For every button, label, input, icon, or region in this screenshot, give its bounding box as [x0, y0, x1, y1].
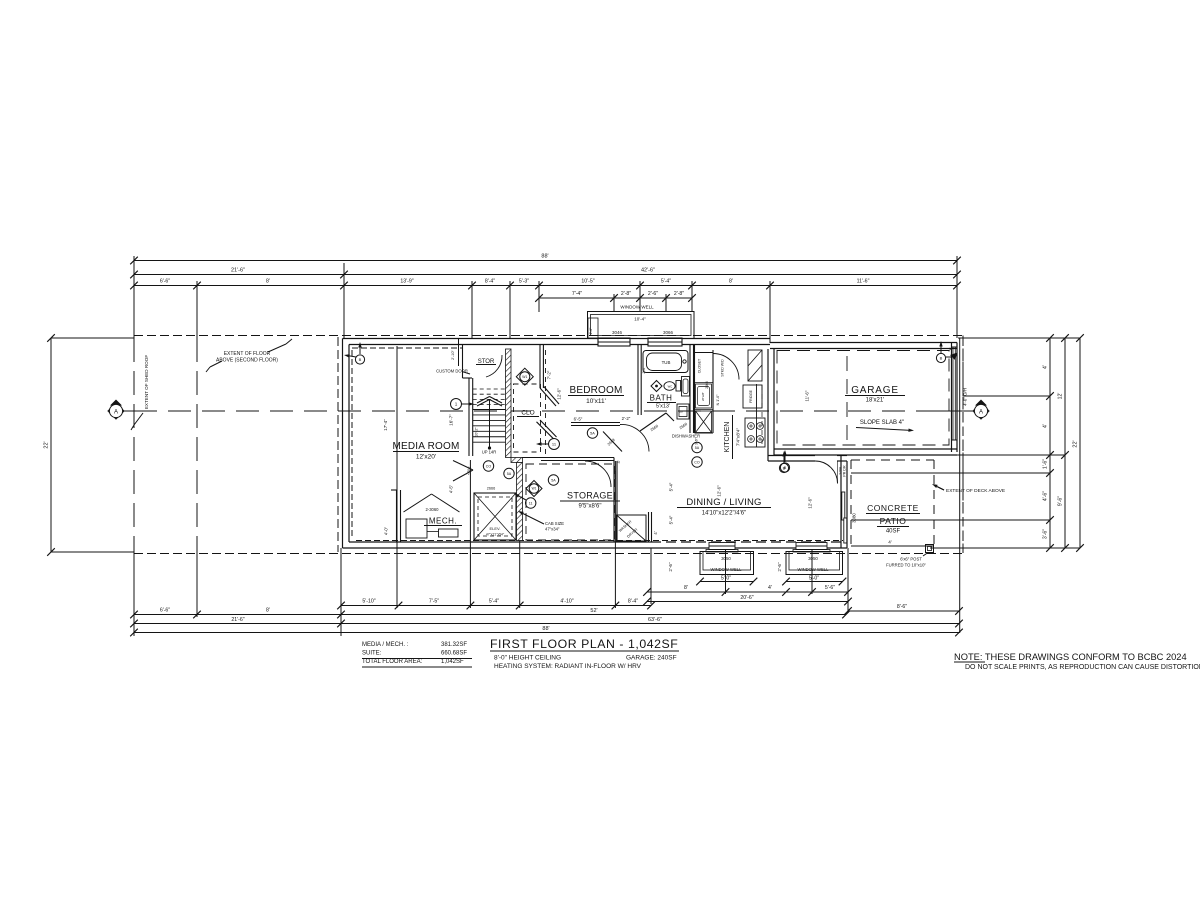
svg-text:PR DR: PR DR — [843, 465, 847, 477]
svg-text:ABOVE (SECOND FLOOR): ABOVE (SECOND FLOOR) — [216, 358, 278, 364]
svg-text:9'5"x8'6": 9'5"x8'6" — [579, 504, 602, 510]
svg-text:660.68SF: 660.68SF — [441, 651, 467, 657]
svg-text:DINING / LIVING: DINING / LIVING — [686, 497, 761, 508]
svg-text:12'-6": 12'-6" — [557, 388, 562, 400]
svg-text:CONCRETE: CONCRETE — [867, 503, 919, 513]
svg-text:5A: 5A — [551, 478, 556, 482]
svg-text:WC: WC — [668, 385, 673, 389]
svg-text:BATH: BATH — [650, 394, 673, 403]
svg-text:N 1'-0": N 1'-0" — [716, 394, 720, 405]
svg-text:5'-4": 5'-4" — [669, 482, 674, 491]
svg-text:12'-6": 12'-6" — [717, 485, 722, 497]
svg-text:22': 22' — [44, 441, 50, 448]
svg-text:4': 4' — [1043, 365, 1049, 369]
svg-text:47"x34": 47"x34" — [545, 527, 560, 532]
svg-text:12'-6": 12'-6" — [808, 497, 813, 509]
svg-text:HEATING SYSTEM: RADIANT IN-FLO: HEATING SYSTEM: RADIANT IN-FLOOR W/ HRV — [494, 663, 642, 670]
svg-text:5'-4": 5'-4" — [661, 279, 671, 285]
svg-text:A: A — [114, 409, 118, 415]
svg-text:52': 52' — [590, 608, 597, 614]
svg-text:5'-0": 5'-0" — [809, 576, 819, 582]
svg-text:8': 8' — [266, 608, 270, 614]
svg-text:4'-10": 4'-10" — [560, 599, 573, 605]
svg-text:5'-6": 5'-6" — [825, 585, 835, 591]
svg-text:4': 4' — [616, 460, 621, 463]
svg-text:FIRST FLOOR PLAN - 1,042SF: FIRST FLOOR PLAN - 1,042SF — [490, 637, 678, 651]
svg-text:FRIDGE: FRIDGE — [749, 389, 753, 403]
svg-text:STORAGE: STORAGE — [567, 491, 613, 501]
svg-text:381.32SF: 381.32SF — [441, 642, 467, 648]
svg-text:2'-2": 2'-2" — [622, 416, 631, 421]
svg-text:12': 12' — [1058, 393, 1064, 400]
svg-text:2'-6": 2'-6" — [589, 327, 593, 335]
svg-text:1'-6": 1'-6" — [1043, 459, 1049, 469]
svg-text:PATIO: PATIO — [880, 516, 907, 526]
svg-text:2'-8": 2'-8" — [621, 291, 631, 297]
svg-text:2'-6": 2'-6" — [668, 562, 673, 572]
svg-text:NOTE: THESE DRAWINGS CONFORM: NOTE: THESE DRAWINGS CONFORM TO BCBC 202… — [954, 652, 1187, 662]
svg-text:BEDROOM: BEDROOM — [569, 385, 622, 396]
svg-text:5'-4": 5'-4" — [489, 599, 499, 605]
svg-text:5'-3": 5'-3" — [519, 279, 529, 285]
svg-text:TOTAL FLOOR AREA:: TOTAL FLOOR AREA: — [362, 659, 423, 665]
svg-text:5A: 5A — [590, 431, 595, 435]
svg-text:CLO: CLO — [521, 410, 534, 417]
svg-text:EXTENT OF DECK ABOVE: EXTENT OF DECK ABOVE — [946, 488, 1005, 494]
svg-text:W1: W1 — [532, 487, 537, 491]
svg-text:SLOPE SLAB 4": SLOPE SLAB 4" — [860, 420, 904, 426]
svg-text:88': 88' — [541, 254, 548, 260]
svg-text:3066: 3066 — [663, 330, 674, 335]
svg-text:17'-4": 17'-4" — [383, 419, 388, 431]
svg-text:4'-6": 4'-6" — [1043, 491, 1049, 501]
svg-text:20: 20 — [679, 410, 683, 414]
svg-text:8'-0" HEIGHT CEILING: 8'-0" HEIGHT CEILING — [494, 655, 561, 662]
svg-text:SUITE:: SUITE: — [362, 651, 382, 657]
svg-text:8': 8' — [684, 585, 688, 591]
svg-text:10'-5": 10'-5" — [581, 279, 594, 285]
svg-text:3'-6": 3'-6" — [1043, 529, 1049, 539]
svg-text:10'-2": 10'-2" — [475, 427, 479, 437]
svg-text:7'-5": 7'-5" — [429, 599, 439, 605]
svg-text:2666: 2666 — [487, 487, 495, 491]
svg-text:FURRED TO 10"x10": FURRED TO 10"x10" — [886, 563, 926, 568]
svg-text:8'-4": 8'-4" — [628, 599, 638, 605]
svg-text:7'-4": 7'-4" — [572, 291, 582, 297]
svg-text:CO: CO — [694, 460, 700, 464]
svg-text:47"x21"x54": 47"x21"x54" — [486, 533, 505, 537]
svg-text:20'-6": 20'-6" — [740, 595, 753, 601]
svg-text:2'-8": 2'-8" — [674, 291, 684, 297]
svg-text:9'-6": 9'-6" — [1058, 496, 1064, 506]
svg-text:W1: W1 — [522, 375, 527, 379]
svg-text:6'-6": 6'-6" — [160, 279, 170, 285]
svg-text:A: A — [979, 409, 983, 415]
svg-text:UP 14R: UP 14R — [482, 450, 497, 455]
svg-text:ELEV.: ELEV. — [490, 526, 501, 531]
svg-text:11: 11 — [529, 501, 533, 505]
svg-text:8': 8' — [266, 279, 270, 285]
svg-text:7'4"x8'4": 7'4"x8'4" — [736, 428, 742, 447]
svg-text:42'-6": 42'-6" — [641, 268, 655, 274]
svg-text:DO NOT SCALE PRINTS, AS REPROD: DO NOT SCALE PRINTS, AS REPRODUCTION CAN… — [965, 664, 1200, 671]
svg-text:MECH.: MECH. — [429, 517, 457, 526]
svg-text:5'-10": 5'-10" — [362, 599, 375, 605]
svg-text:8': 8' — [729, 279, 733, 285]
svg-text:8'-4": 8'-4" — [485, 279, 495, 285]
svg-text:3080: 3080 — [852, 513, 857, 523]
svg-text:TUB: TUB — [662, 360, 671, 365]
svg-text:5'x13': 5'x13' — [656, 404, 670, 410]
svg-text:B: B — [359, 357, 362, 362]
svg-text:4'-5": 4'-5" — [449, 484, 454, 493]
svg-text:16'-7": 16'-7" — [449, 414, 454, 426]
svg-text:13'-9": 13'-9" — [400, 279, 413, 285]
svg-text:5A: 5A — [507, 472, 512, 476]
svg-text:40SF: 40SF — [886, 529, 901, 535]
svg-text:18'x21': 18'x21' — [866, 398, 885, 404]
svg-text:WINDOW WELL: WINDOW WELL — [711, 567, 743, 572]
svg-text:22': 22' — [1073, 440, 1079, 447]
svg-text:3050: 3050 — [808, 556, 818, 561]
svg-text:2'-6": 2'-6" — [648, 291, 658, 297]
svg-text:MEDIA / MECH. :: MEDIA / MECH. : — [362, 642, 409, 648]
svg-text:3046: 3046 — [612, 330, 623, 335]
svg-text:WINDOW WELL: WINDOW WELL — [620, 305, 654, 310]
svg-text:4': 4' — [888, 540, 892, 545]
svg-text:2'-6": 2'-6" — [642, 366, 646, 374]
svg-text:2'-6": 2'-6" — [777, 562, 782, 572]
svg-text:10'-4": 10'-4" — [634, 317, 646, 322]
svg-text:3050: 3050 — [721, 556, 731, 561]
svg-text:12'x20': 12'x20' — [416, 454, 436, 461]
svg-text:4': 4' — [653, 531, 658, 534]
svg-text:10'x11': 10'x11' — [586, 398, 606, 405]
svg-text:WINDOW WELL: WINDOW WELL — [798, 567, 830, 572]
svg-text:2'-10": 2'-10" — [451, 350, 455, 360]
svg-text:21'-6": 21'-6" — [231, 268, 245, 274]
svg-text:1,042SF: 1,042SF — [441, 659, 464, 665]
svg-text:B: B — [940, 355, 943, 360]
svg-text:CAB SIZE: CAB SIZE — [545, 521, 564, 526]
svg-text:88': 88' — [542, 626, 549, 632]
svg-text:1: 1 — [455, 402, 458, 407]
svg-text:11'-6": 11'-6" — [805, 390, 810, 401]
svg-text:2-3060: 2-3060 — [425, 507, 439, 512]
svg-text:5'-4": 5'-4" — [669, 515, 674, 524]
svg-text:8'-6": 8'-6" — [897, 604, 907, 610]
svg-text:5A: 5A — [695, 446, 700, 450]
svg-text:B: B — [783, 465, 786, 470]
svg-text:6'-5": 6'-5" — [574, 417, 583, 422]
svg-text:4': 4' — [1043, 424, 1049, 428]
svg-text:KITCHEN: KITCHEN — [724, 422, 731, 453]
svg-text:MEDIA ROOM: MEDIA ROOM — [392, 441, 459, 452]
svg-text:GARAGE: 240SF: GARAGE: 240SF — [626, 655, 677, 662]
svg-text:6'x6" POST: 6'x6" POST — [900, 557, 922, 562]
svg-text:4'-0": 4'-0" — [384, 526, 389, 535]
svg-text:CUSTOM DOOR: CUSTOM DOOR — [436, 369, 468, 374]
svg-text:CLOSET: CLOSET — [698, 358, 702, 373]
svg-text:4': 4' — [768, 585, 772, 591]
svg-text:21'-6": 21'-6" — [231, 617, 244, 623]
svg-text:6'-6": 6'-6" — [160, 608, 170, 614]
svg-text:3'-6": 3'-6" — [695, 437, 699, 445]
svg-text:EXTENT OF SHED ROOF: EXTENT OF SHED ROOF — [144, 355, 149, 409]
svg-text:GARAGE: GARAGE — [851, 385, 899, 396]
svg-text:CO: CO — [486, 464, 492, 468]
svg-text:63'-6": 63'-6" — [648, 617, 662, 623]
svg-text:DISHWASHER: DISHWASHER — [672, 434, 700, 439]
svg-text:11'-6": 11'-6" — [857, 279, 870, 285]
svg-text:5'-0": 5'-0" — [721, 576, 731, 582]
svg-text:14'10"x12'2"/4'6": 14'10"x12'2"/4'6" — [702, 511, 747, 517]
svg-text:EXTENT OF FLOOR: EXTENT OF FLOOR — [224, 351, 271, 357]
svg-text:28"x28": 28"x28" — [701, 392, 705, 401]
svg-text:STKD W/D: STKD W/D — [721, 359, 725, 377]
svg-text:7'-2": 7'-2" — [547, 370, 552, 379]
